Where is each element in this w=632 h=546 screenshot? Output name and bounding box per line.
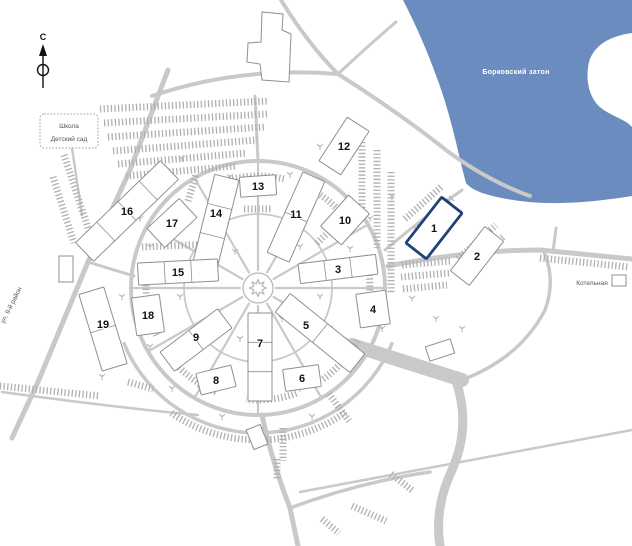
- building-number: 11: [290, 209, 302, 221]
- boiler-label: Котельная: [576, 280, 608, 287]
- tree-icon: [297, 244, 303, 250]
- parking-strip: [401, 273, 449, 277]
- building-9[interactable]: 9: [160, 309, 232, 371]
- school-label: Школа: [59, 123, 79, 130]
- tree-icon: [409, 296, 415, 302]
- tree-icon: [237, 336, 243, 342]
- building-number: 14: [210, 208, 223, 220]
- building-number: 19: [97, 319, 109, 331]
- building-7[interactable]: 7: [248, 313, 272, 401]
- parking-strip: [104, 114, 267, 123]
- parking-strip: [126, 166, 236, 176]
- building-number: 2: [474, 251, 480, 263]
- building-number: 1: [431, 223, 437, 235]
- building-number: 4: [370, 304, 377, 316]
- building-4[interactable]: 4: [356, 290, 390, 328]
- road: [553, 228, 556, 252]
- water-polygon: [403, 0, 632, 203]
- north-arrow-head: [39, 44, 47, 56]
- building-15[interactable]: 15: [137, 259, 218, 285]
- tree-icon: [287, 172, 293, 178]
- building-number: 7: [257, 338, 263, 350]
- tree-icon: [347, 246, 353, 252]
- compass-north-label: С: [40, 32, 47, 42]
- building-5[interactable]: 5: [275, 293, 365, 372]
- tree-icon: [459, 326, 465, 332]
- water-label: Борковский затон: [482, 68, 549, 76]
- tree-icon: [317, 294, 323, 300]
- building-number: 18: [142, 310, 154, 322]
- building-13[interactable]: 13: [239, 175, 276, 197]
- building-footprint[interactable]: [248, 313, 272, 401]
- road: [88, 262, 134, 276]
- small-building: [425, 339, 454, 361]
- tree-icon: [433, 316, 439, 322]
- tree-icon: [169, 386, 175, 392]
- building-number: 9: [193, 332, 199, 344]
- building-number: 8: [213, 375, 219, 387]
- building-number: 10: [339, 215, 351, 227]
- irregular-building: [247, 12, 291, 82]
- tree-icon: [317, 144, 323, 150]
- tree-icon: [177, 294, 183, 300]
- site-plan-map: Борковский затон 12345678910111213141516…: [0, 0, 632, 546]
- parking-strip: [352, 506, 386, 521]
- boiler-building: [612, 275, 626, 286]
- building-17[interactable]: 17: [147, 198, 197, 247]
- building-18[interactable]: 18: [131, 294, 164, 336]
- building-number: 5: [303, 320, 309, 332]
- kindergarten-label: Детский сад: [51, 135, 88, 143]
- tree-icon: [309, 414, 315, 420]
- tree-icon: [99, 374, 105, 380]
- water-area: Борковский затон: [403, 0, 632, 203]
- road: [439, 378, 463, 546]
- central-plaza: [243, 273, 273, 303]
- building-number: 13: [252, 181, 264, 193]
- tree-icon: [119, 294, 125, 300]
- parking-strip: [113, 140, 257, 151]
- building-number: 12: [338, 141, 350, 153]
- tree-icon: [219, 414, 225, 420]
- parking-strip: [108, 127, 264, 137]
- building-number: 6: [299, 373, 305, 385]
- parking-strip: [64, 155, 89, 231]
- road: [152, 72, 338, 96]
- parking-strip: [100, 101, 268, 109]
- building-number: 17: [166, 218, 178, 230]
- parking-strip: [322, 519, 339, 533]
- street-label: ул. 9-й район: [0, 285, 24, 324]
- road: [338, 22, 396, 74]
- building-19[interactable]: 19: [79, 287, 127, 371]
- road: [300, 430, 632, 492]
- building-number: 15: [172, 267, 184, 279]
- building-number: 3: [335, 264, 341, 276]
- building-6[interactable]: 6: [283, 365, 322, 392]
- building-number: 16: [121, 206, 133, 218]
- plaza-gear-icon: [250, 280, 267, 297]
- building-8[interactable]: 8: [196, 365, 236, 395]
- parking-strip: [403, 285, 447, 289]
- small-building: [59, 256, 73, 282]
- compass: С: [38, 32, 49, 88]
